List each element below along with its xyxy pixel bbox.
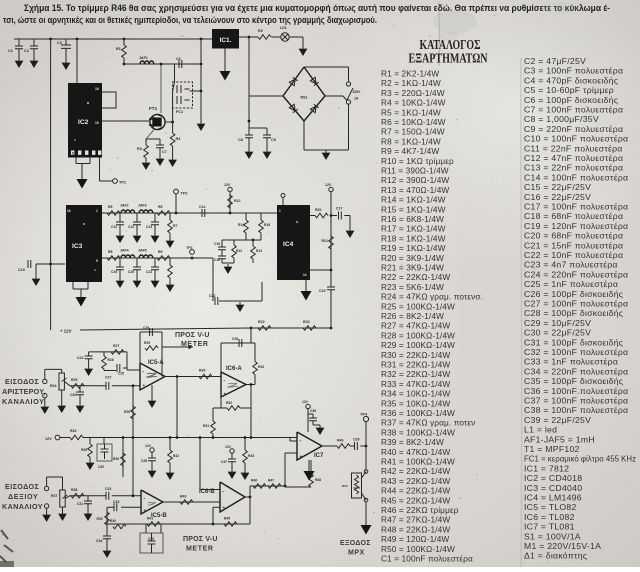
svg-text:C26: C26	[232, 337, 238, 341]
svg-text:+: +	[144, 508, 147, 513]
svg-text:R41 = 100KΩ-1/4W: R41 = 100KΩ-1/4W	[381, 457, 455, 467]
svg-text:R28 = 100KΩ-1/4W: R28 = 100KΩ-1/4W	[381, 330, 455, 340]
svg-text:R33: R33	[258, 365, 264, 369]
svg-text:FT1: FT1	[149, 106, 158, 111]
svg-text:T1 = MPF102: T1 = MPF102	[524, 444, 580, 454]
svg-text:R30: R30	[199, 369, 205, 373]
svg-text:R26: R26	[124, 410, 130, 414]
svg-text:C15 = 22μF/25V: C15 = 22μF/25V	[524, 182, 591, 192]
svg-text:R5: R5	[108, 205, 113, 209]
svg-text:R28: R28	[108, 358, 114, 362]
svg-text:Δ1 = διακόπτης: Δ1 = διακόπτης	[524, 551, 587, 561]
svg-text:C31 = 100pF δισκοειδής: C31 = 100pF δισκοειδής	[524, 337, 623, 347]
svg-text:R30 = 22KΩ-1/4W: R30 = 22KΩ-1/4W	[381, 350, 450, 360]
svg-text:C3 = 100nF πολυεστέρα: C3 = 100nF πολυεστέρα	[524, 66, 623, 76]
svg-text:JAF4: JAF4	[120, 249, 129, 253]
svg-text:IC4 = LM1496: IC4 = LM1496	[524, 493, 582, 503]
svg-text:C8: C8	[238, 138, 243, 142]
svg-text:JAF5: JAF5	[138, 249, 147, 253]
svg-text:R8 = 1KΩ-1/4W: R8 = 1KΩ-1/4W	[381, 136, 441, 146]
svg-text:R38: R38	[71, 488, 77, 492]
svg-text:R6 = 10KΩ-1/4W: R6 = 10KΩ-1/4W	[381, 117, 446, 127]
svg-text:R46 = 22KΩ τρίμμερ: R46 = 22KΩ τρίμμερ	[381, 505, 459, 515]
svg-text:R37 = 47KΩ γραμ. ποτεν: R37 = 47KΩ γραμ. ποτεν	[381, 418, 475, 428]
svg-text:R6: R6	[158, 205, 163, 209]
svg-text:R18: R18	[264, 223, 270, 227]
svg-text:R9: R9	[158, 250, 163, 254]
svg-text:R40: R40	[110, 519, 116, 523]
svg-text:IC1.: IC1.	[220, 37, 232, 44]
svg-text:C11 = 22nF πολυεστέρα: C11 = 22nF πολυεστέρα	[524, 143, 623, 153]
svg-text:R8: R8	[108, 250, 113, 254]
svg-text:C7 = 100nF πολυεστέρα: C7 = 100nF πολυεστέρα	[524, 105, 623, 115]
svg-text:JAF3: JAF3	[138, 204, 147, 208]
svg-text:R13 = 470Ω-1/4W: R13 = 470Ω-1/4W	[381, 185, 449, 195]
svg-text:R3 = 220Ω-1/4W: R3 = 220Ω-1/4W	[381, 88, 445, 98]
svg-text:R32 = 22KΩ-1/4W: R32 = 22KΩ-1/4W	[381, 369, 450, 379]
svg-text:ΕΙΣΟΔΟΣ: ΕΙΣΟΔΟΣ	[5, 482, 39, 491]
svg-text:C36 = 100nF πολυεστέρα: C36 = 100nF πολυεστέρα	[524, 386, 628, 396]
svg-text:R44 = 22KΩ-1/4W: R44 = 22KΩ-1/4W	[381, 486, 450, 496]
svg-text:C1 = 100nF πολυεστέρα: C1 = 100nF πολυεστέρα	[381, 554, 473, 564]
svg-text:16: 16	[67, 209, 71, 213]
svg-text:C34 = 220nF πολυεστέρα: C34 = 220nF πολυεστέρα	[524, 366, 628, 376]
svg-text:C11: C11	[111, 225, 117, 229]
svg-text:C4 = 470pF δισκοειδής: C4 = 470pF δισκοειδής	[524, 75, 618, 85]
svg-text:R18 = 1KΩ-1/4W: R18 = 1KΩ-1/4W	[381, 233, 446, 243]
svg-text:METER: METER	[181, 341, 209, 348]
svg-text:C23 = 4n7 πολυεστέρα: C23 = 4n7 πολυεστέρα	[524, 260, 618, 270]
svg-text:R34: R34	[70, 429, 76, 433]
svg-text:C21: C21	[146, 270, 152, 274]
svg-text:C26 = 100pF δισκοειδής: C26 = 100pF δισκοειδής	[524, 289, 623, 299]
svg-text:R22 = 22KΩ-1/4W: R22 = 22KΩ-1/4W	[381, 272, 450, 282]
svg-text:R24 = 47KΩ γραμ. ποτενσ.: R24 = 47KΩ γραμ. ποτενσ.	[381, 292, 483, 302]
svg-text:R23: R23	[303, 320, 310, 324]
svg-text:C30: C30	[70, 393, 76, 397]
svg-text:TP4: TP4	[360, 413, 368, 417]
svg-text:METER: METER	[186, 546, 214, 553]
svg-text:12V: 12V	[224, 183, 231, 187]
svg-text:C32: C32	[105, 487, 111, 491]
svg-text:C19: C19	[111, 270, 117, 274]
svg-text:C33: C33	[113, 500, 119, 504]
svg-text:R16 = 6K8-1/4W: R16 = 6K8-1/4W	[381, 214, 444, 224]
svg-text:ΔΕΞΙΟΥ: ΔΕΞΙΟΥ	[8, 492, 38, 501]
svg-text:R50: R50	[342, 484, 348, 488]
svg-text:R17 = 1KΩ-1/4W: R17 = 1KΩ-1/4W	[381, 224, 446, 234]
svg-text:R1: R1	[116, 47, 121, 51]
svg-text:R42 = 22KΩ-1/4W: R42 = 22KΩ-1/4W	[381, 466, 450, 476]
svg-text:R34 = 10KΩ-1/4W: R34 = 10KΩ-1/4W	[381, 389, 450, 399]
svg-text:ΠΡΟΣ V-U: ΠΡΟΣ V-U	[175, 332, 210, 339]
svg-text:-: -	[300, 438, 302, 444]
svg-text:C22 = 10nF πολυεστέρα: C22 = 10nF πολυεστέρα	[524, 250, 623, 260]
svg-text:R41: R41	[147, 517, 153, 521]
svg-text:8: 8	[72, 152, 74, 156]
svg-text:C7: C7	[162, 150, 167, 154]
svg-text:RS1: RS1	[301, 96, 308, 100]
svg-text:C28 = 100pF δισκοειδής: C28 = 100pF δισκοειδής	[524, 308, 623, 318]
svg-text:R9 = 4K7-1/4W: R9 = 4K7-1/4W	[381, 146, 439, 156]
svg-text:IC7: IC7	[314, 453, 324, 459]
svg-text:R45: R45	[224, 517, 230, 521]
svg-text:C18 = 68nF πολυεστέρα: C18 = 68nF πολυεστέρα	[524, 211, 623, 221]
svg-text:C35: C35	[148, 537, 154, 541]
svg-text:IC6-A: IC6-A	[226, 366, 242, 372]
svg-text:R27: R27	[113, 344, 119, 348]
svg-text:IC1 = 7812: IC1 = 7812	[524, 463, 569, 473]
svg-text:14: 14	[303, 273, 307, 277]
svg-text:C35 = 100pF δισκοειδής: C35 = 100pF δισκοειδής	[524, 376, 623, 386]
svg-text:-: -	[224, 378, 226, 384]
svg-text:R48 = 22KΩ-1/4W: R48 = 22KΩ-1/4W	[381, 524, 450, 534]
svg-text:R2 = 1KΩ-1/4W: R2 = 1KΩ-1/4W	[381, 78, 441, 88]
svg-text:R20: R20	[315, 208, 321, 212]
svg-text:C10 = 100nF πολυεστέρα: C10 = 100nF πολυεστέρα	[524, 134, 628, 144]
svg-text:C17 = 100nF πολυεστέρα: C17 = 100nF πολυεστέρα	[524, 202, 628, 212]
svg-text:ΑΡΙΣΤΕΡΟΥ,: ΑΡΙΣΤΕΡΟΥ,	[2, 387, 46, 396]
svg-text:R24: R24	[50, 384, 56, 388]
svg-text:R23 = 5K6-1/4W: R23 = 5K6-1/4W	[381, 282, 444, 292]
svg-text:C6 = 100pF δισκοειδής: C6 = 100pF δισκοειδής	[524, 95, 618, 105]
svg-text:R29 = 100KΩ-1/4W: R29 = 100KΩ-1/4W	[381, 340, 455, 350]
svg-text:R50 = 100KΩ-1/4W: R50 = 100KΩ-1/4W	[381, 544, 455, 554]
svg-text:R38 = 100KΩ-1/4W: R38 = 100KΩ-1/4W	[381, 427, 455, 437]
svg-text:C25 = 1nF πολυεστέρα: C25 = 1nF πολυεστέρα	[524, 279, 618, 289]
svg-text:12V: 12V	[145, 444, 152, 448]
svg-text:TP2: TP2	[181, 192, 188, 196]
svg-text:C37 = 100nF πολυεστέρα: C37 = 100nF πολυεστέρα	[524, 396, 628, 406]
svg-text:C29 = 10μF/25V: C29 = 10μF/25V	[524, 318, 591, 328]
svg-text:M1 = 220V/15V-1A: M1 = 220V/15V-1A	[524, 541, 601, 551]
svg-text:C29: C29	[143, 326, 149, 330]
svg-text:R22: R22	[258, 320, 265, 324]
svg-text:R10: R10	[234, 199, 240, 203]
svg-text:R49: R49	[337, 439, 343, 443]
svg-text:FC1: FC1	[176, 110, 183, 114]
svg-text:C24 = 220nF πολυεστέρα: C24 = 220nF πολυεστέρα	[524, 269, 628, 279]
svg-text:C2: C2	[24, 49, 29, 53]
svg-text:C32 = 100nF πολυεστέρα: C32 = 100nF πολυεστέρα	[524, 347, 628, 357]
svg-text:10: 10	[95, 121, 99, 125]
svg-text:Σχήμα 15. Το τρίμμερ R46 θα σα: Σχήμα 15. Το τρίμμερ R46 θα σας χρησιμεύ…	[24, 3, 610, 13]
svg-text:R44: R44	[248, 454, 254, 458]
svg-text:R33 = 47KΩ-1/4W: R33 = 47KΩ-1/4W	[381, 379, 450, 389]
svg-text:R14 = 1KΩ-1/4W: R14 = 1KΩ-1/4W	[381, 195, 446, 205]
svg-text:R48: R48	[315, 478, 321, 482]
svg-text:16: 16	[95, 87, 99, 91]
svg-text:R1 = 2K2-1/4W: R1 = 2K2-1/4W	[381, 69, 439, 79]
svg-text:C15: C15	[214, 242, 220, 246]
svg-text:C38 = 100nF πολυεστέρα: C38 = 100nF πολυεστέρα	[524, 405, 628, 415]
svg-text:+: +	[223, 505, 226, 510]
svg-text:R47 = 27KΩ-1/4W: R47 = 27KΩ-1/4W	[381, 515, 450, 525]
svg-text:C30 = 22μF/25V: C30 = 22μF/25V	[524, 328, 591, 338]
svg-text:R3: R3	[137, 147, 142, 151]
svg-text:IC5 = TLO82: IC5 = TLO82	[524, 502, 577, 512]
svg-text:12V: 12V	[302, 400, 309, 404]
svg-text:R40 = 47KΩ-1/4W: R40 = 47KΩ-1/4W	[381, 447, 450, 457]
svg-text:IC2 = CD4018: IC2 = CD4018	[524, 473, 582, 483]
svg-text:C3: C3	[57, 41, 62, 45]
svg-text:R39: R39	[97, 517, 103, 521]
svg-text:C38: C38	[310, 409, 316, 413]
svg-text:C21 = 15nF πολυεστέρα: C21 = 15nF πολυεστέρα	[524, 240, 623, 250]
svg-text:R5 = 1KΩ-1/4W: R5 = 1KΩ-1/4W	[381, 107, 441, 117]
svg-text:12V: 12V	[45, 437, 52, 441]
svg-text:VOUT: VOUT	[353, 486, 361, 490]
svg-text:R7: R7	[173, 224, 178, 228]
svg-text:R7 = 150Ω-1/4W: R7 = 150Ω-1/4W	[381, 127, 445, 137]
svg-text:C31: C31	[77, 502, 83, 506]
svg-text:R46: R46	[251, 479, 257, 483]
svg-text:R43: R43	[180, 495, 186, 499]
svg-text:C14 = 100nF πολυεστέρα: C14 = 100nF πολυεστέρα	[524, 172, 628, 182]
svg-text:IC3 = CD4040: IC3 = CD4040	[524, 483, 582, 493]
svg-text:JAF2: JAF2	[120, 204, 129, 208]
svg-text:5: 5	[96, 259, 98, 263]
svg-text:C1: C1	[8, 49, 13, 53]
svg-text:R42: R42	[173, 454, 179, 458]
svg-text:C14: C14	[199, 205, 205, 209]
svg-text:R31: R31	[203, 424, 209, 428]
svg-text:R31 = 22KΩ-1/4W: R31 = 22KΩ-1/4W	[381, 360, 450, 370]
svg-text:+: +	[224, 392, 227, 397]
svg-text:C12 = 47nF πολυεστέρα: C12 = 47nF πολυεστέρα	[524, 153, 623, 163]
svg-text:ΚΑΝΑΛΙΟΥ: ΚΑΝΑΛΙΟΥ	[2, 397, 45, 406]
svg-text:R36: R36	[113, 457, 119, 461]
svg-text:IC3: IC3	[72, 243, 83, 250]
svg-text:R37: R37	[51, 494, 57, 498]
svg-text:C2 = 47μF/25V: C2 = 47μF/25V	[524, 56, 586, 66]
svg-text:TP1: TP1	[119, 181, 126, 185]
svg-text:C12: C12	[128, 225, 134, 229]
svg-text:C16 = 22μF/25V: C16 = 22μF/25V	[524, 192, 591, 202]
svg-text:R12: R12	[236, 249, 242, 253]
svg-text:τσι, ώστε οι αρνητικές και οι: τσι, ώστε οι αρνητικές και οι θετικές ημ…	[3, 15, 377, 25]
svg-text:IC7 = TL081: IC7 = TL081	[524, 522, 575, 532]
svg-text:JAF1: JAF1	[139, 56, 148, 60]
svg-text:R13: R13	[256, 249, 262, 253]
svg-text:IC6 = TL082: IC6 = TL082	[524, 512, 575, 522]
svg-text:C9: C9	[271, 138, 276, 142]
svg-text:+: +	[300, 454, 303, 459]
svg-text:R20 = 3K9-1/4W: R20 = 3K9-1/4W	[381, 253, 444, 263]
svg-text:C39: C39	[353, 438, 359, 442]
svg-text:S1 = 100V/1A: S1 = 100V/1A	[524, 531, 581, 541]
svg-text:TP3: TP3	[186, 246, 192, 250]
svg-text:C13: C13	[146, 225, 152, 229]
svg-text:C28: C28	[141, 459, 147, 463]
svg-text:C8 = 1,000μF/35V: C8 = 1,000μF/35V	[524, 114, 599, 124]
svg-text:C13 = 22nF πολυεστέρα: C13 = 22nF πολυεστέρα	[524, 163, 623, 173]
svg-text:C10: C10	[18, 268, 25, 272]
svg-text:LD1: LD1	[280, 26, 287, 30]
svg-text:R15 = 1KΩ-1/4W: R15 = 1KΩ-1/4W	[381, 204, 446, 214]
svg-text:FC1 = κεραμικό φίλτρο 455 KHz: FC1 = κεραμικό φίλτρο 455 KHz	[524, 454, 636, 464]
svg-text:C20 = 68nF πολυεστέρα: C20 = 68nF πολυεστέρα	[524, 231, 623, 241]
svg-text:-: -	[223, 489, 225, 495]
svg-text:R25 = 100KΩ-1/4W: R25 = 100KΩ-1/4W	[381, 301, 455, 311]
svg-text:C19 = 120nF πολυεστέρα: C19 = 120nF πολυεστέρα	[524, 221, 628, 231]
svg-text:C6: C6	[176, 57, 181, 61]
svg-text:R26 = 8K2-1/4W: R26 = 8K2-1/4W	[381, 311, 444, 321]
svg-text:R36 = 100KΩ-1/4W: R36 = 100KΩ-1/4W	[381, 408, 455, 418]
svg-text:R43 = 22KΩ-1/4W: R43 = 22KΩ-1/4W	[381, 476, 450, 486]
svg-text:C27: C27	[105, 376, 111, 380]
svg-text:IC2: IC2	[78, 119, 89, 126]
svg-text:R14: R14	[238, 223, 244, 227]
svg-text:ΕΞΟΔΟΣ: ΕΞΟΔΟΣ	[340, 540, 371, 547]
svg-text:1A: 1A	[354, 97, 359, 101]
svg-text:C27 = 100nF πολυεστέρα: C27 = 100nF πολυεστέρα	[524, 299, 628, 309]
svg-text:IC5-B: IC5-B	[151, 513, 167, 519]
svg-text:C5 = 10-60pF τρίμμερ: C5 = 10-60pF τρίμμερ	[524, 85, 614, 95]
svg-text:C23: C23	[319, 289, 325, 293]
svg-text:1: 1	[96, 209, 98, 213]
svg-text:IC4: IC4	[283, 241, 294, 248]
svg-text:R49 = 120Ω-1/4W: R49 = 120Ω-1/4W	[381, 534, 449, 544]
svg-text:R10 = 1KΩ τρίμμερ: R10 = 1KΩ τρίμμερ	[381, 156, 454, 166]
svg-text:-: -	[143, 369, 145, 375]
svg-text:12V: 12V	[325, 183, 332, 187]
svg-text:+: +	[143, 383, 146, 388]
svg-text:C34: C34	[96, 539, 102, 543]
svg-text:ΕΞΑΡΤΗΜΑΤΩΝ: ΕΞΑΡΤΗΜΑΤΩΝ	[409, 51, 488, 66]
svg-text:ΚΑΝΑΛΙΟΥ: ΚΑΝΑΛΙΟΥ	[2, 502, 43, 511]
svg-text:1: 1	[279, 209, 281, 213]
svg-text:R11 = 390Ω-1/4W: R11 = 390Ω-1/4W	[381, 166, 449, 176]
svg-text:ΕΙΣΟΔΟΣ: ΕΙΣΟΔΟΣ	[5, 377, 39, 386]
svg-text:R47: R47	[268, 479, 274, 483]
svg-text:C37: C37	[221, 460, 227, 464]
svg-text:C17: C17	[336, 207, 342, 211]
svg-text:R35: R35	[81, 448, 87, 452]
svg-text:R12 = 390Ω-1/4W: R12 = 390Ω-1/4W	[381, 175, 449, 185]
svg-text:L1 = led: L1 = led	[524, 425, 557, 435]
svg-text:R27 = 47KΩ-1/4W: R27 = 47KΩ-1/4W	[381, 321, 450, 331]
svg-text:C20: C20	[128, 270, 134, 274]
svg-text:R4 = 10KΩ-1/4W: R4 = 10KΩ-1/4W	[381, 98, 446, 108]
svg-text:AF1-JAF5 = 1mH: AF1-JAF5 = 1mH	[524, 434, 595, 444]
svg-text:MPX: MPX	[348, 550, 365, 557]
svg-text:-: -	[144, 496, 146, 502]
svg-text:+ 12V: + 12V	[60, 329, 72, 334]
svg-text:R45 = 22KΩ-1/4W: R45 = 22KΩ-1/4W	[381, 495, 450, 505]
svg-text:12V: 12V	[225, 445, 232, 449]
svg-text:R21 = 3K9-1/4W: R21 = 3K9-1/4W	[381, 263, 444, 273]
svg-text:R2: R2	[258, 29, 263, 33]
svg-text:R29: R29	[144, 341, 150, 345]
svg-text:R32: R32	[226, 401, 232, 405]
svg-text:R39 = 8K2-1/4W: R39 = 8K2-1/4W	[381, 437, 444, 447]
svg-text:C22: C22	[209, 294, 215, 298]
svg-text:C30: C30	[98, 465, 104, 469]
svg-text:C25: C25	[118, 372, 124, 376]
svg-text:R25: R25	[71, 378, 77, 382]
svg-text:C24: C24	[77, 356, 83, 360]
svg-text:C39 = 22μF/25V: C39 = 22μF/25V	[524, 415, 591, 425]
svg-text:C9 = 220nF πολυεστέρα: C9 = 220nF πολυεστέρα	[524, 124, 623, 134]
svg-text:ΠΡΟΣ V-U: ΠΡΟΣ V-U	[183, 536, 218, 543]
svg-text:C16: C16	[214, 258, 220, 262]
svg-text:C33 = 1nF πολυεστέρα: C33 = 1nF πολυεστέρα	[524, 357, 618, 367]
svg-text:R35 = 10KΩ-1/4W: R35 = 10KΩ-1/4W	[381, 398, 450, 408]
svg-text:R19 = 1KΩ-1/4W: R19 = 1KΩ-1/4W	[381, 243, 446, 253]
svg-text:220V: 220V	[353, 90, 362, 94]
svg-text:R21: R21	[322, 239, 328, 243]
